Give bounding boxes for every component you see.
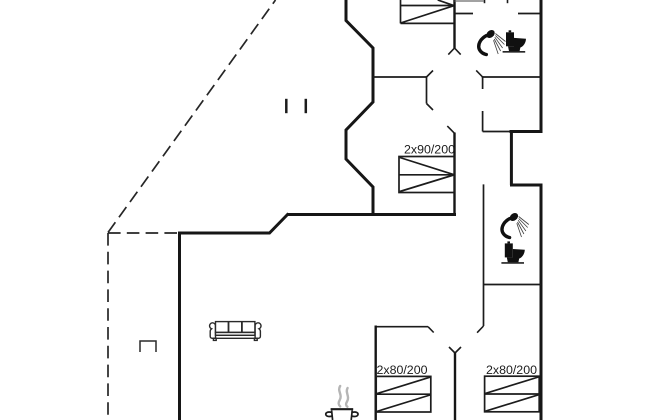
svg-text:2x80/200: 2x80/200	[377, 363, 428, 377]
svg-text:2x80/200: 2x80/200	[486, 363, 537, 377]
svg-text:2x90/200: 2x90/200	[404, 143, 455, 157]
